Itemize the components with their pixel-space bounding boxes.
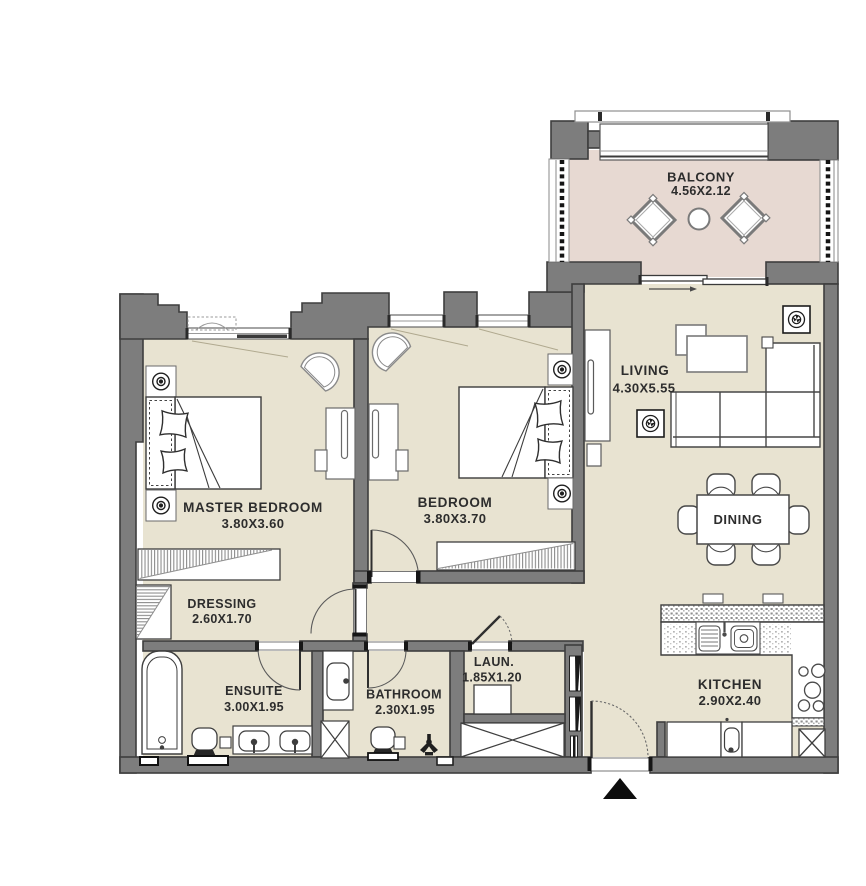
svg-text:2.60X1.70: 2.60X1.70	[192, 612, 252, 626]
svg-text:LIVING: LIVING	[621, 363, 670, 378]
svg-text:BALCONY: BALCONY	[667, 170, 735, 185]
svg-text:DINING: DINING	[713, 512, 762, 527]
svg-text:BATHROOM: BATHROOM	[366, 688, 442, 702]
svg-text:2.90X2.40: 2.90X2.40	[699, 693, 762, 708]
svg-text:1.85X1.20: 1.85X1.20	[462, 671, 522, 685]
svg-text:MASTER BEDROOM: MASTER BEDROOM	[183, 500, 323, 515]
svg-text:3.80X3.70: 3.80X3.70	[424, 511, 487, 526]
svg-text:3.80X3.60: 3.80X3.60	[222, 516, 285, 531]
svg-text:2.30X1.95: 2.30X1.95	[375, 703, 435, 717]
svg-text:BEDROOM: BEDROOM	[418, 495, 493, 510]
svg-text:KITCHEN: KITCHEN	[698, 677, 762, 692]
svg-text:4.56X2.12: 4.56X2.12	[671, 184, 731, 198]
svg-text:ENSUITE: ENSUITE	[225, 684, 283, 698]
svg-text:LAUN.: LAUN.	[474, 655, 514, 669]
svg-text:4.30X5.55: 4.30X5.55	[613, 381, 676, 396]
svg-text:DRESSING: DRESSING	[187, 597, 256, 611]
svg-text:3.00X1.95: 3.00X1.95	[224, 700, 284, 714]
